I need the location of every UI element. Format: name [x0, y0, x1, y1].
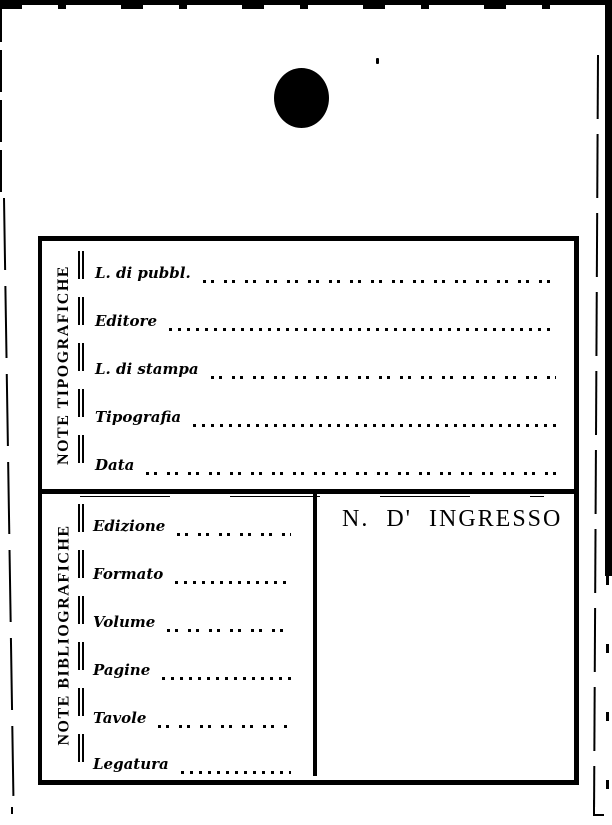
- field-row-legatura: Legatura: [93, 750, 293, 774]
- double-rule-divider: [78, 504, 84, 768]
- field-label: Formato: [93, 567, 163, 584]
- field-label: Tavole: [93, 711, 146, 728]
- field-label: Pagine: [93, 663, 150, 680]
- field-label: L. di stampa: [95, 362, 199, 379]
- scan-artifact-right-inner-line: [593, 55, 599, 807]
- dotted-fill-line: [203, 267, 556, 283]
- field-row-editore: Editore: [95, 307, 558, 331]
- dotted-fill-line: [158, 712, 291, 728]
- double-rule-divider: [78, 251, 84, 481]
- dotted-fill-line: [162, 664, 291, 680]
- scan-artifact-left-edge-slant: [3, 198, 14, 796]
- scan-artifact-speck: [376, 58, 379, 64]
- field-row-data: Data: [95, 451, 558, 475]
- scan-artifact-right-bottom-hook: [593, 800, 604, 816]
- section-note-tipografiche: NOTE TIPOGRAFICHE L. di pubbl. Editore L…: [42, 241, 574, 489]
- section-title-tipografiche: NOTE TIPOGRAFICHE: [55, 265, 73, 465]
- dotted-fill-line: [175, 568, 291, 584]
- scan-artifact-right-outer-bar: [605, 0, 612, 576]
- field-label: Legatura: [93, 757, 169, 774]
- dotted-fill-line: [211, 363, 556, 379]
- dotted-fill-line: [193, 411, 556, 427]
- dotted-fill-line: [181, 758, 291, 774]
- dotted-fill-line: [177, 520, 291, 536]
- dotted-fill-line: [146, 459, 556, 475]
- section-note-bibliografiche: NOTE BIBLIOGRAFICHE Edizione Formato Vol…: [42, 494, 574, 776]
- hole-punch-icon: [274, 68, 329, 128]
- field-label: Tipografia: [95, 410, 181, 427]
- field-row-pagine: Pagine: [93, 656, 293, 680]
- field-row-tavole: Tavole: [93, 704, 293, 728]
- field-row-edizione: Edizione: [93, 512, 293, 536]
- field-label: L. di pubbl.: [95, 266, 191, 283]
- catalog-card-table: NOTE TIPOGRAFICHE L. di pubbl. Editore L…: [38, 236, 579, 785]
- dotted-fill-line: [167, 616, 291, 632]
- accession-number-heading: N. D' INGRESSO: [342, 506, 562, 533]
- scanned-catalog-card: NOTE TIPOGRAFICHE L. di pubbl. Editore L…: [0, 0, 612, 825]
- scan-artifact-left-edge-top: [0, 0, 2, 192]
- field-label: Data: [95, 458, 134, 475]
- dotted-fill-line: [169, 315, 556, 331]
- scan-artifact-right-outer-tail: [606, 576, 609, 806]
- section-title-bibliografiche: NOTE BIBLIOGRAFICHE: [55, 525, 73, 746]
- vertical-cell-divider: [313, 494, 317, 776]
- field-label: Editore: [95, 314, 157, 331]
- scan-artifact-speck-bottom: [11, 807, 13, 814]
- field-row-l-di-stampa: L. di stampa: [95, 355, 558, 379]
- field-row-formato: Formato: [93, 560, 293, 584]
- field-label: Edizione: [93, 519, 165, 536]
- field-row-tipografia: Tipografia: [95, 403, 558, 427]
- scan-artifact-top-edge: [0, 0, 612, 5]
- field-row-volume: Volume: [93, 608, 293, 632]
- field-label: Volume: [93, 615, 155, 632]
- field-row-l-di-pubbl: L. di pubbl.: [95, 259, 558, 283]
